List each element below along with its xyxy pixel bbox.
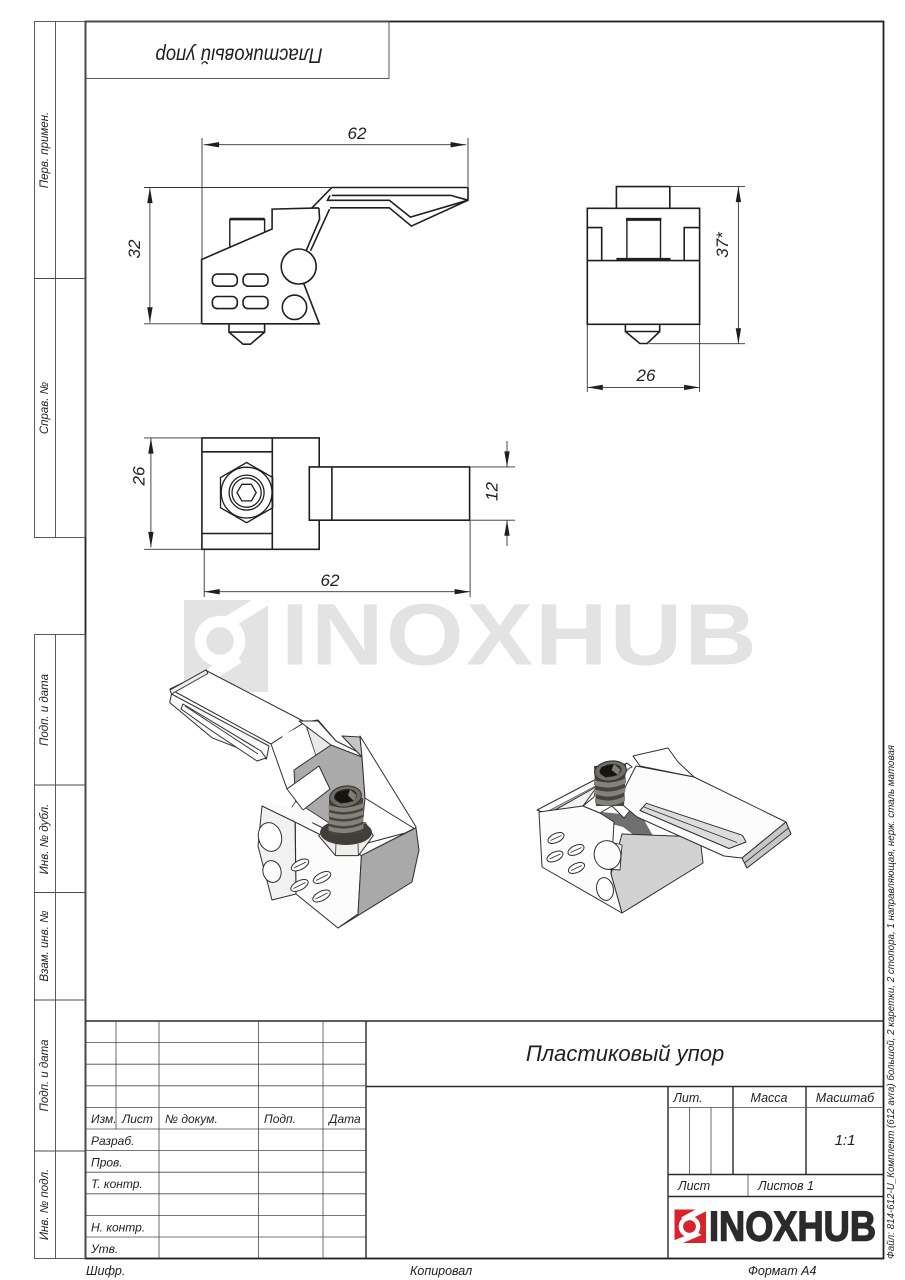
svg-text:Листов 1: Листов 1 — [757, 1179, 814, 1193]
svg-text:1:1: 1:1 — [835, 1132, 856, 1149]
svg-text:Справ. №: Справ. № — [39, 381, 51, 434]
svg-text:Инв. № дубл.: Инв. № дубл. — [39, 804, 51, 875]
svg-text:Лист: Лист — [677, 1179, 710, 1193]
svg-text:Масса: Масса — [751, 1091, 788, 1105]
svg-text:Пластиковый упор: Пластиковый упор — [526, 1041, 724, 1066]
svg-text:Копировал: Копировал — [410, 1264, 472, 1278]
svg-text:Изм.: Изм. — [91, 1112, 117, 1126]
svg-text:Подп. и дата: Подп. и дата — [39, 674, 51, 746]
svg-text:№ докум.: № докум. — [165, 1112, 218, 1126]
svg-text:26: 26 — [130, 466, 149, 486]
svg-text:Шифр.: Шифр. — [86, 1264, 125, 1278]
svg-text:Утв.: Утв. — [90, 1242, 118, 1256]
svg-text:Пластиковый упор: Пластиковый упор — [156, 44, 323, 67]
svg-text:Дата: Дата — [327, 1112, 361, 1126]
svg-text:Масштаб: Масштаб — [816, 1091, 875, 1105]
svg-text:Т. контр.: Т. контр. — [91, 1177, 143, 1191]
svg-text:INOXHUB: INOXHUB — [709, 1203, 876, 1250]
svg-text:26: 26 — [636, 366, 656, 385]
svg-text:Подп.: Подп. — [264, 1112, 296, 1126]
svg-text:Файл: 814-612-U_Комплект (612: Файл: 814-612-U_Комплект (612 avra) боль… — [885, 745, 897, 1259]
svg-text:Лит.: Лит. — [672, 1091, 702, 1105]
svg-text:32: 32 — [125, 239, 144, 258]
svg-text:Н. контр.: Н. контр. — [91, 1221, 145, 1235]
svg-text:Инв. № подл.: Инв. № подл. — [39, 1169, 51, 1240]
svg-text:62: 62 — [348, 124, 367, 143]
svg-text:Лист: Лист — [121, 1112, 153, 1126]
svg-text:37*: 37* — [713, 231, 732, 258]
svg-text:12: 12 — [483, 482, 502, 501]
svg-text:Подп. и дата: Подп. и дата — [39, 1040, 51, 1112]
svg-text:Формат А4: Формат А4 — [748, 1264, 816, 1278]
svg-text:Разраб.: Разраб. — [91, 1134, 134, 1148]
svg-text:Перв. примен.: Перв. примен. — [39, 112, 51, 188]
svg-text:Пров.: Пров. — [91, 1156, 123, 1170]
svg-text:Взам. инв. №: Взам. инв. № — [39, 910, 51, 982]
svg-text:INOXHUB: INOXHUB — [281, 587, 759, 684]
svg-text:62: 62 — [321, 571, 340, 590]
